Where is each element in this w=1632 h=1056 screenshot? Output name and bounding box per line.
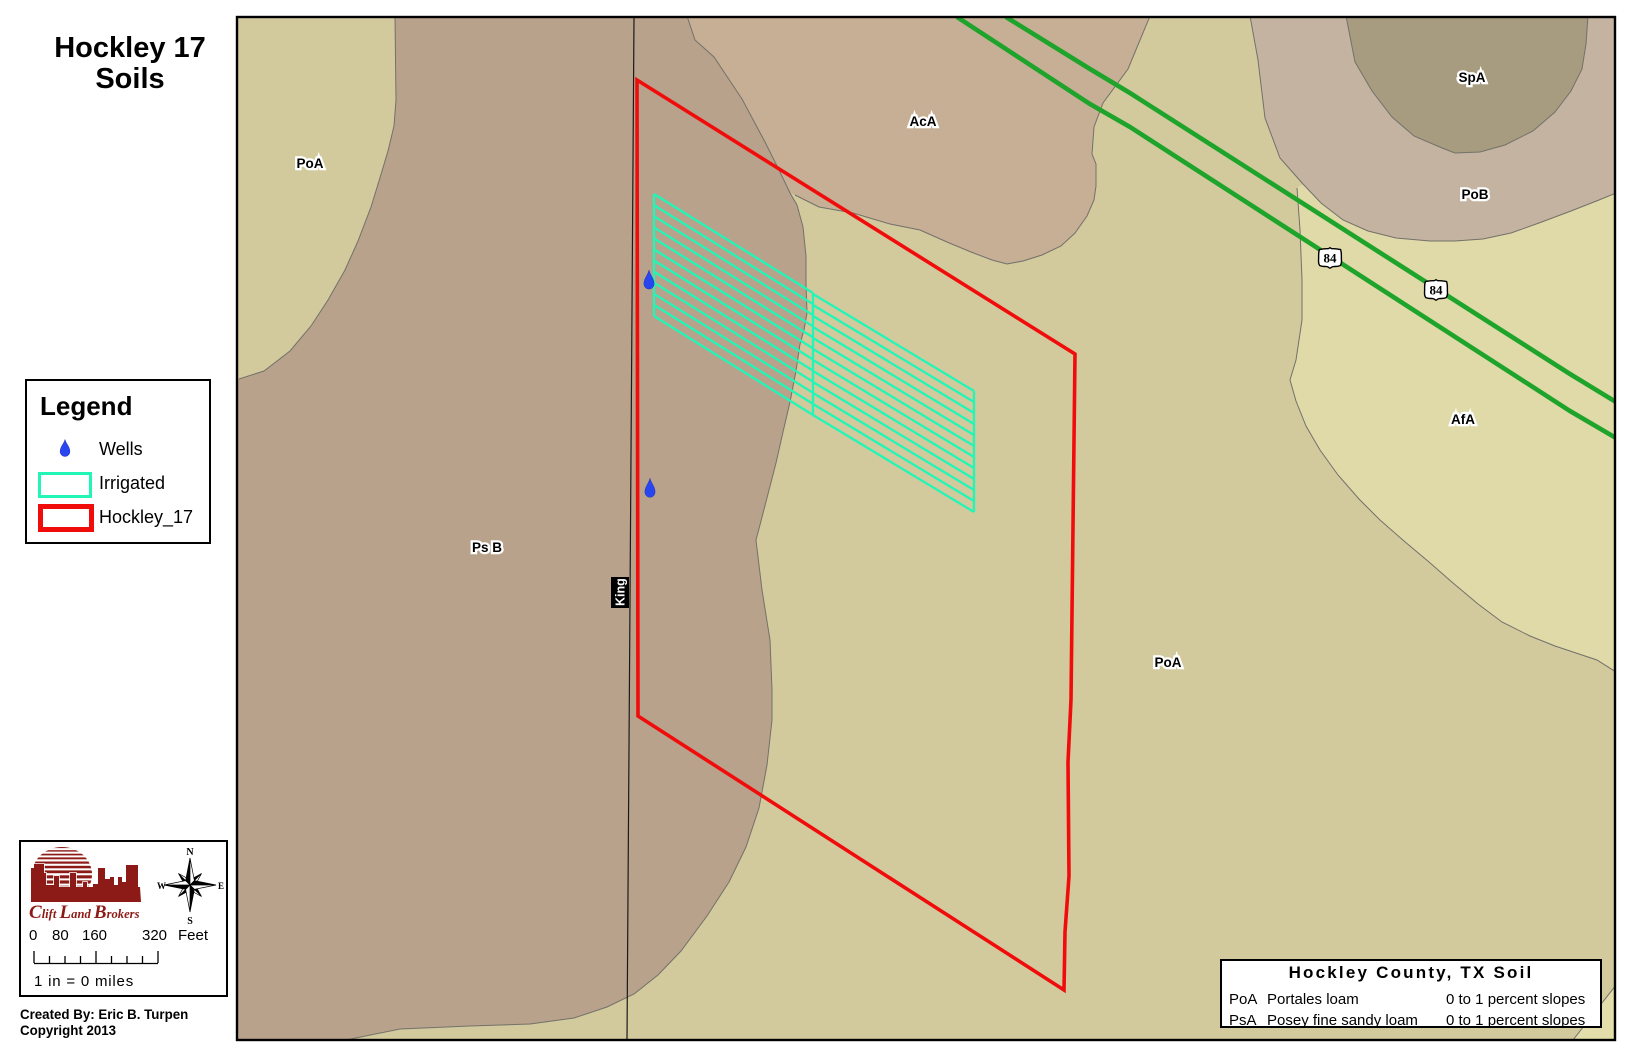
svg-text:PoA: PoA xyxy=(1155,655,1182,670)
svg-text:PoB: PoB xyxy=(1462,187,1489,202)
svg-text:N: N xyxy=(186,847,194,858)
svg-text:84: 84 xyxy=(1324,251,1338,266)
svg-text:84: 84 xyxy=(1430,283,1444,298)
svg-text:SpA: SpA xyxy=(1459,70,1486,85)
svg-text:E: E xyxy=(218,881,224,891)
svg-text:S: S xyxy=(187,916,193,927)
svg-text:AfA: AfA xyxy=(1451,412,1475,427)
svg-text:AcA: AcA xyxy=(909,114,936,129)
svg-text:King: King xyxy=(614,578,628,606)
svg-text:PoA: PoA xyxy=(297,156,324,171)
svg-text:Clift Land Brokers: Clift Land Brokers xyxy=(29,902,140,923)
svg-text:W: W xyxy=(157,881,166,891)
svg-text:Ps B: Ps B xyxy=(472,540,502,555)
